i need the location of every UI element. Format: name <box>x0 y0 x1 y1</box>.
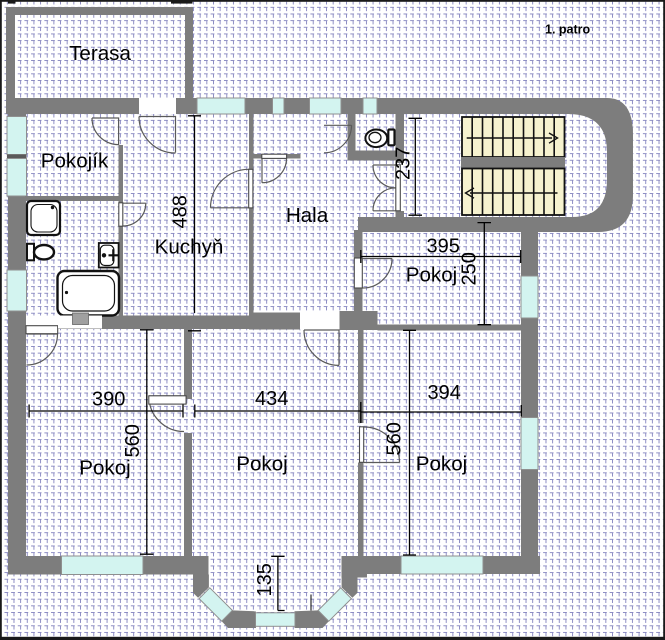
svg-text:Kuchyň: Kuchyň <box>155 236 224 259</box>
svg-text:Terasa: Terasa <box>69 42 131 65</box>
svg-text:Pokoj: Pokoj <box>416 453 468 476</box>
svg-text:Pokoj: Pokoj <box>79 457 131 480</box>
svg-text:434: 434 <box>255 388 288 410</box>
svg-text:Pokoj: Pokoj <box>236 453 288 476</box>
svg-text:1. patro: 1. patro <box>545 23 591 37</box>
svg-text:Hala: Hala <box>286 204 329 227</box>
svg-text:135: 135 <box>254 563 276 596</box>
svg-text:390: 390 <box>92 389 125 411</box>
svg-text:237: 237 <box>393 147 415 180</box>
svg-text:488: 488 <box>169 195 191 228</box>
svg-text:395: 395 <box>427 236 460 258</box>
svg-text:560: 560 <box>384 422 406 455</box>
svg-text:560: 560 <box>122 424 144 457</box>
svg-text:Pokoj: Pokoj <box>406 264 458 287</box>
svg-text:394: 394 <box>428 382 461 404</box>
svg-text:Pokojík: Pokojík <box>41 149 109 172</box>
svg-text:250: 250 <box>459 252 481 285</box>
